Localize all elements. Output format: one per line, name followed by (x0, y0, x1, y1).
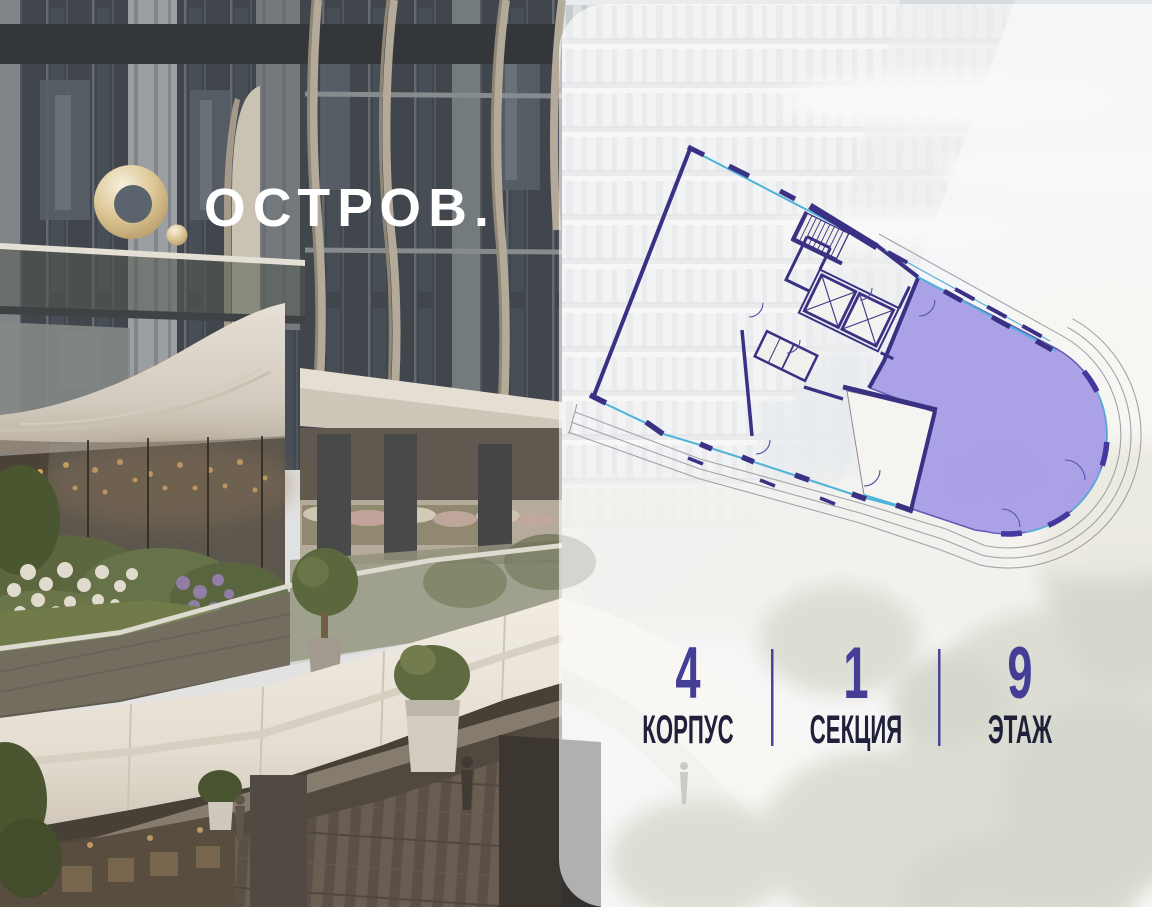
svg-text:КОРПУС: КОРПУС (642, 707, 733, 752)
svg-text:1: 1 (843, 632, 868, 714)
svg-text:СЕКЦИЯ: СЕКЦИЯ (810, 707, 902, 752)
svg-text:9: 9 (1007, 632, 1032, 714)
svg-text:ЭТАЖ: ЭТАЖ (988, 707, 1053, 752)
svg-text:4: 4 (675, 632, 700, 714)
svg-text:ОСТРОВ.: ОСТРОВ. (204, 179, 496, 238)
